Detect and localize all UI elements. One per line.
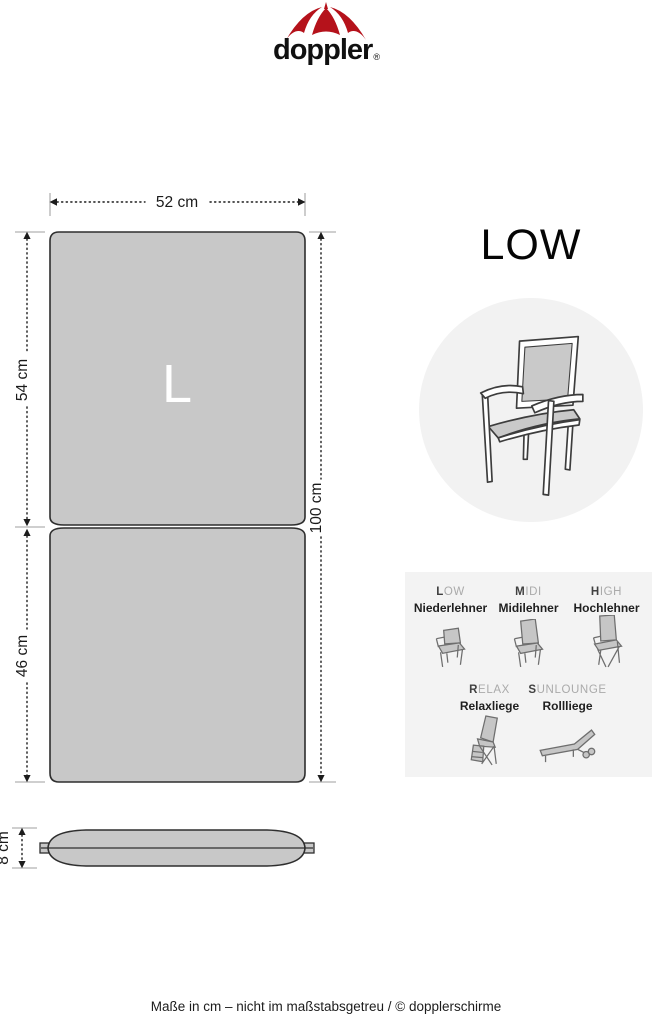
- variant-code-bold: H: [591, 586, 600, 598]
- variant-item-midi: MIDI Midilehner: [490, 585, 568, 669]
- variant-code-rest: ELAX: [478, 684, 510, 696]
- arrowhead-up: [23, 529, 30, 536]
- page: doppler® L 52 cm 54 cm 46 cm: [0, 0, 652, 1020]
- thickness-dimension-label: 8 cm: [0, 831, 12, 865]
- variant-code: RELAX: [469, 683, 510, 697]
- variant-code: SUNLOUNGE: [528, 683, 606, 697]
- relax-lounger-icon: [466, 717, 514, 767]
- variant-code-bold: R: [469, 684, 478, 696]
- variant-item-relax: RELAX Relaxliege: [451, 683, 529, 767]
- chair-high-icon: [585, 619, 629, 669]
- variant-row-1: LOW Niederlehner MIDI Midilehner: [405, 572, 652, 669]
- variant-code: HIGH: [591, 585, 622, 599]
- variant-code: LOW: [436, 585, 465, 599]
- total-height-dimension-label: 100 cm: [308, 483, 325, 534]
- brand-wordmark-text: doppler: [273, 34, 372, 66]
- upper-height-dimension-label: 54 cm: [14, 359, 31, 401]
- brand-wordmark: doppler®: [273, 36, 379, 65]
- variant-name: Relaxliege: [460, 699, 519, 713]
- variant-name: Midilehner: [498, 601, 558, 615]
- chair-midi-icon: [508, 619, 550, 669]
- registered-mark: ®: [373, 52, 380, 62]
- variant-item-high: HIGH Hochlehner: [568, 585, 646, 669]
- brand-logo: doppler®: [0, 2, 652, 65]
- dimension-diagram: L 52 cm 54 cm 46 cm 100 cm 8: [0, 185, 350, 885]
- width-dimension-label: 52 cm: [156, 194, 198, 211]
- variant-name: Rollliege: [542, 699, 592, 713]
- arrowhead-down: [23, 775, 30, 782]
- variant-row-2: RELAX Relaxliege SUNLOUNGE Rollliege: [405, 683, 652, 767]
- footer-note: Maße in cm – nicht im maßstabsgetreu / ©…: [0, 999, 652, 1014]
- size-letter: L: [162, 354, 192, 414]
- variant-code-rest: IDI: [525, 586, 542, 598]
- arrowhead-up: [23, 232, 30, 239]
- arrowhead-up: [18, 828, 25, 835]
- variant-code-rest: OW: [444, 586, 465, 598]
- arrowhead-down: [23, 519, 30, 526]
- variant-code-bold: S: [528, 684, 536, 696]
- variant-item-low: LOW Niederlehner: [412, 585, 490, 669]
- variant-panel: LOW Niederlehner MIDI Midilehner: [405, 572, 652, 777]
- sunlounge-icon: [537, 717, 599, 767]
- chair-circle: [419, 298, 643, 522]
- low-armchair-icon: [447, 319, 615, 502]
- product-heading: LOW: [419, 222, 643, 268]
- variant-name: Niederlehner: [414, 601, 487, 615]
- arrowhead-down: [317, 775, 324, 782]
- variant-code-bold: M: [515, 586, 525, 598]
- variant-code: MIDI: [515, 585, 542, 599]
- cushion-seat-section: [50, 528, 305, 782]
- lower-height-dimension-label: 46 cm: [14, 635, 31, 677]
- variant-item-sunlounge: SUNLOUNGE Rollliege: [529, 683, 607, 767]
- arrowhead-down: [18, 861, 25, 868]
- variant-name: Hochlehner: [573, 601, 639, 615]
- chair-low-icon: [430, 619, 472, 669]
- variant-code-rest: IGH: [600, 586, 622, 598]
- variant-code-rest: UNLOUNGE: [537, 684, 607, 696]
- arrowhead-up: [317, 232, 324, 239]
- variant-code-bold: L: [436, 586, 444, 598]
